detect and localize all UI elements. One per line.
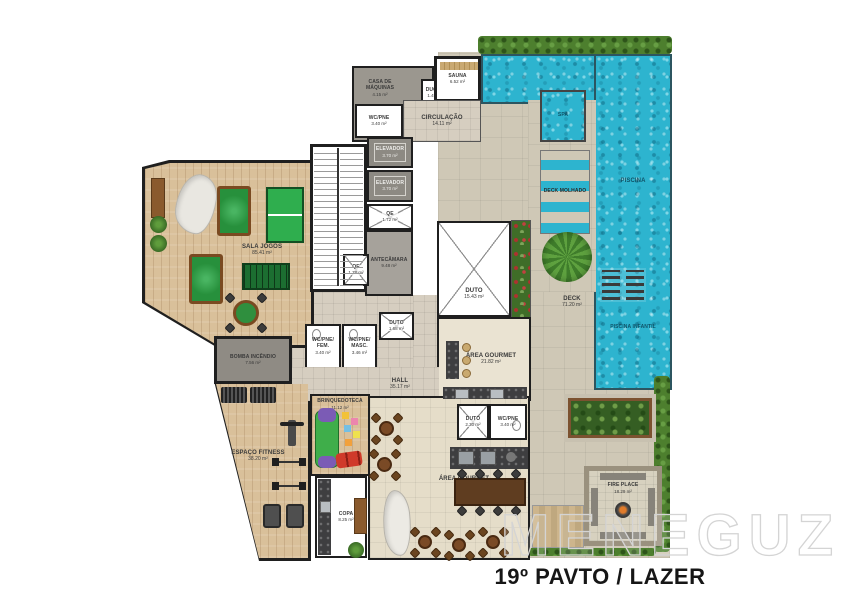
toy-block: [353, 431, 360, 438]
barbell-icon: [272, 482, 306, 490]
lounger-icon: [602, 270, 620, 300]
hedge-top: [478, 36, 672, 54]
gourmet-counter: [443, 387, 527, 399]
toilet-icon: [512, 420, 521, 431]
lounger-icon: [626, 270, 644, 300]
dumbbell-rack: [250, 387, 276, 403]
label-duto-gourmet: DUTO2.30 m²: [465, 417, 480, 428]
spa-pool: SPA: [540, 90, 586, 142]
room-duto-hall: DUTO1.68 m²: [379, 312, 414, 340]
grill-counter: [450, 447, 528, 469]
dumbbell-rack: [221, 387, 247, 403]
play-structure-top: [318, 408, 336, 422]
room-sauna: SAUNA6.52 m²: [434, 56, 481, 102]
barbell-icon: [280, 422, 304, 426]
stair-treads: [340, 148, 363, 286]
room-wc-pne-gourmet: WC/PNE3.40 m²: [489, 404, 527, 440]
square-table: [379, 421, 394, 436]
room-wc-fem: WC/PNE/ FEM.3.40 m²: [305, 324, 341, 369]
label-duto-hall: DUTO1.68 m²: [389, 321, 404, 332]
plant-icon: [348, 542, 364, 558]
stair-treads: [314, 148, 337, 286]
room-wc-masc: WC/PNE/ MASC.3.46 m²: [342, 324, 377, 369]
toy-block: [345, 439, 352, 446]
sink-icon: [320, 501, 331, 513]
label-area-gourmet-sup: ÁREA GOURMET21.82 m²: [466, 353, 516, 366]
sideboard: [151, 178, 165, 218]
elevator-cab: [374, 143, 406, 162]
planter-flowers: [511, 220, 531, 318]
elevator-cab: [374, 176, 406, 196]
stool-icon: [462, 369, 471, 378]
toilet-icon: [349, 329, 358, 340]
sauna-bench: [440, 62, 478, 70]
gourmet-island-counter: [446, 341, 459, 379]
page-title: 19º PAVTO / LAZER: [450, 564, 750, 590]
room-wc-pne-sup: WC/PNE3.40 m²: [355, 104, 403, 138]
cooktop-icon: [480, 451, 496, 465]
label-spa: SPA: [558, 113, 568, 119]
game-table: [233, 300, 259, 326]
stool-icon: [462, 343, 471, 352]
label-deck-molhado: DECK MOLHADO: [544, 189, 587, 195]
room-antecamara: ANTECÂMARA9.48 m²: [365, 230, 413, 296]
play-structure-bottom: [318, 456, 336, 468]
label-hall: HALL35.17 m²: [390, 378, 410, 391]
pool-main: [594, 54, 672, 390]
foosball-table: [242, 263, 290, 290]
billiards-table: [189, 254, 223, 304]
label-sauna: SAUNA6.52 m²: [448, 74, 466, 85]
fire-bench-top: [600, 473, 646, 480]
toy-block: [351, 418, 358, 425]
room-elevador-1: ELEVADOR3.70 m²: [367, 137, 413, 168]
grill-icon: [458, 451, 474, 465]
billiards-table: [217, 186, 251, 236]
plant-icon: [150, 235, 167, 252]
square-table: [377, 457, 392, 472]
copa-counter: [318, 479, 331, 555]
room-duto-principal: DUTO15.43 m²: [437, 221, 511, 317]
label-qe-1: QE1.72 m²: [382, 212, 397, 223]
label-duto-principal: DUTO15.43 m²: [464, 288, 484, 301]
label-bomba-incendio: BOMBA INCÊNDIO7.56 m²: [230, 355, 276, 366]
watermark: MENEGUZ: [390, 502, 840, 569]
label-copa: COPA8.25 m²: [338, 512, 353, 523]
floor-plan-page: PISCINA PISCINA INFANTIL SPA DECK MOLHAD…: [0, 0, 849, 600]
label-circulacao: CIRCULAÇÃO14.11 m²: [421, 115, 462, 128]
toy-block: [344, 425, 351, 432]
stair-rail: [337, 148, 339, 286]
ping-pong-table: [266, 187, 304, 243]
palm-tree-icon: [542, 232, 592, 282]
room-qe-1: QE1.72 m²: [367, 204, 413, 230]
sink-icon: [506, 452, 516, 462]
room-espaco-fitness: [212, 384, 308, 558]
pool-loungers: [600, 268, 646, 302]
garden-planter-box: [568, 398, 652, 438]
barbell-icon: [272, 458, 306, 466]
label-wc-masc: WC/PNE/ MASC.3.46 m²: [344, 338, 375, 355]
wet-deck: DECK MOLHADO: [540, 150, 590, 234]
toilet-icon: [312, 329, 321, 340]
room-circulacao: CIRCULAÇÃO14.11 m²: [403, 100, 481, 142]
cabinet: [354, 498, 367, 534]
stool-icon: [462, 356, 471, 365]
toy-block: [342, 412, 349, 419]
plant-icon: [150, 216, 167, 233]
label-wc-fem: WC/PNE/ FEM.3.40 m²: [307, 338, 339, 355]
label-antecamara: ANTECÂMARA9.48 m²: [371, 258, 408, 269]
exercise-mat: [263, 504, 281, 528]
room-duto-gourmet: DUTO2.30 m²: [457, 404, 489, 440]
label-casa-maquinas: CASA DE MÁQUINAS4.15 m²: [355, 80, 405, 97]
label-wc-pne-sup: WC/PNE3.40 m²: [369, 116, 390, 127]
sink-icon: [490, 389, 504, 399]
room-elevador-2: ELEVADOR3.70 m²: [367, 170, 413, 202]
room-bomba-incendio: BOMBA INCÊNDIO7.56 m²: [214, 336, 292, 384]
sink-icon: [455, 389, 469, 399]
exercise-mat: [286, 504, 304, 528]
label-fire-place: FIRE PLACE18.29 m²: [592, 483, 654, 494]
